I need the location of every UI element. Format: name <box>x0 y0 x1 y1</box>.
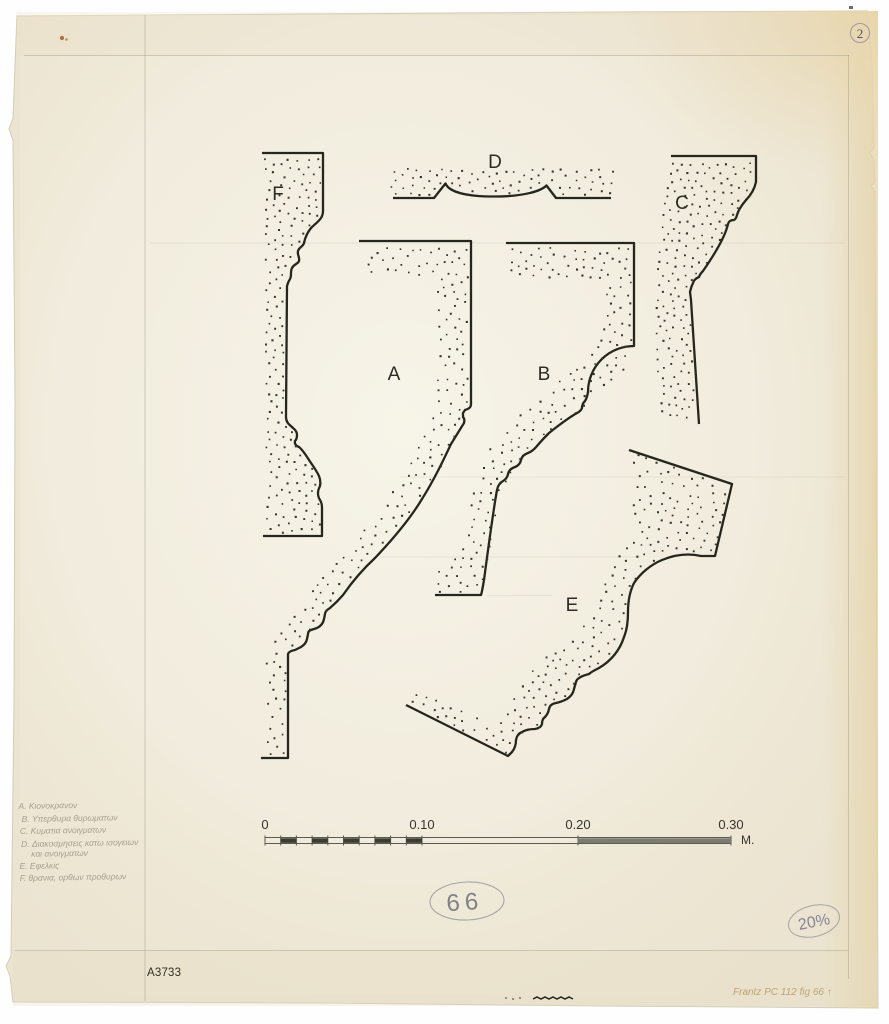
svg-text:0.10: 0.10 <box>409 817 434 832</box>
svg-text:0: 0 <box>261 817 268 832</box>
svg-text:C: C <box>675 193 689 214</box>
svg-text:A. Κιονοκρανον: A. Κιονοκρανον <box>17 800 78 811</box>
svg-text:B: B <box>538 364 551 385</box>
svg-text:0.30: 0.30 <box>718 817 743 832</box>
svg-text:και ανοιγματων: και ανοιγματων <box>31 848 89 859</box>
svg-text:A: A <box>388 364 401 385</box>
svg-text:D: D <box>488 152 502 173</box>
svg-text:66: 66 <box>446 888 484 917</box>
svg-text:0.20: 0.20 <box>565 817 590 832</box>
svg-text:F. θρανια, ορθων προθυρων: F. θρανια, ορθων προθυρων <box>20 871 128 883</box>
svg-text:E: E <box>566 595 579 616</box>
svg-text:M.: M. <box>741 833 754 847</box>
svg-text:E. Εφελκις: E. Εφελκις <box>19 860 60 871</box>
svg-text:Frantz PC 112 fig 66 ↑: Frantz PC 112 fig 66 ↑ <box>733 987 832 998</box>
svg-text:A3733: A3733 <box>147 967 181 979</box>
svg-text:B. Υπερθυρα θυρωματων: B. Υπερθυρα θυρωματων <box>22 812 119 824</box>
svg-text:2: 2 <box>857 26 864 41</box>
svg-text:C. Κυματια ανοιγματων: C. Κυματια ανοιγματων <box>20 824 107 836</box>
svg-text:F: F <box>272 184 284 205</box>
